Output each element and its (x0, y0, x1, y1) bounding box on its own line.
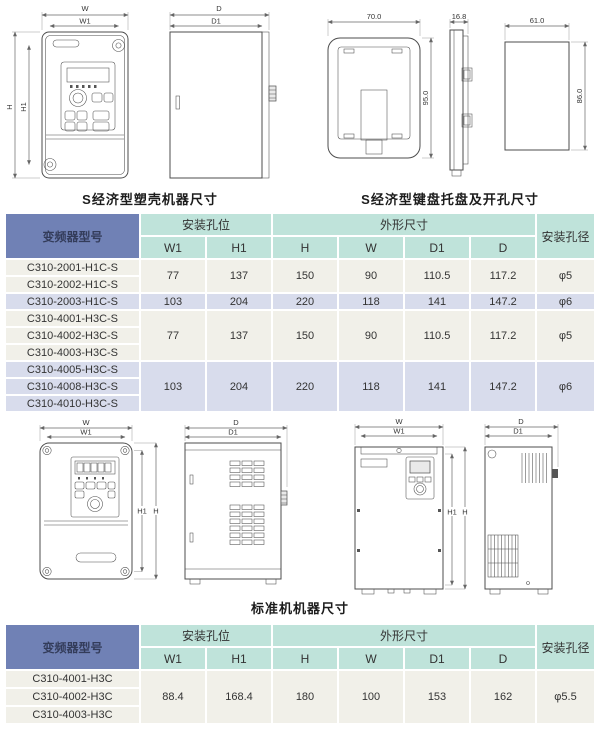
s-machine-caption: S经济型塑壳机器尺寸 (82, 192, 218, 208)
col-header-h1: H1 (207, 237, 271, 258)
col-header-model: 变频器型号 (6, 625, 139, 669)
value-cell: 180 (273, 671, 337, 723)
value-cell: 141 (405, 362, 469, 411)
value-cell: 141 (405, 294, 469, 309)
value-cell: 103 (141, 362, 205, 411)
table-row: C310-4005-H3C-S 103 204 220 118 141 147.… (6, 362, 594, 377)
model-cell: C310-4003-H3C (6, 707, 139, 723)
col-header-w1: W1 (141, 648, 205, 669)
s-side-view (170, 32, 276, 178)
col-group-outline-dims: 外形尺寸 (273, 214, 535, 235)
value-cell: 153 (405, 671, 469, 723)
dim-label-tray-depth: 16.8 (452, 12, 467, 21)
s-keypad-drawing-block: 70.0 95.0 16.8 (300, 0, 600, 208)
dim-label-w: W (395, 417, 403, 426)
col-group-mounting-holes: 安装孔位 (141, 214, 271, 235)
value-cell: 147.2 (471, 294, 535, 309)
value-cell: 88.4 (141, 671, 205, 723)
model-cell: C310-4001-H3C (6, 671, 139, 687)
col-header-d: D (471, 237, 535, 258)
model-cell: C310-2003-H1C-S (6, 294, 139, 309)
value-cell: 118 (339, 362, 403, 411)
model-cell: C310-2002-H1C-S (6, 277, 139, 292)
dim-label-d1: D1 (513, 427, 523, 436)
dim-label-d: D (518, 417, 524, 426)
std-machine-dimension-drawing: W W1 H1 H (0, 417, 300, 599)
dim-label-tray-height: 95.0 (421, 91, 430, 106)
panel-cutout-view (505, 42, 569, 150)
value-cell: 117.2 (471, 311, 535, 360)
value-cell: 90 (339, 311, 403, 360)
dim-label-h1: H1 (137, 507, 147, 516)
value-cell: 162 (471, 671, 535, 723)
dim-label-d: D (216, 4, 222, 13)
dim-label-cutout-height: 86.0 (575, 89, 584, 104)
standard-machine-drawings-section: W W1 H1 H (0, 417, 600, 599)
value-cell: 137 (207, 311, 271, 360)
dim-label-h1: H1 (19, 102, 28, 112)
col-header-w: W (339, 237, 403, 258)
dim-label-d: D (233, 418, 239, 427)
tray-side-view (450, 30, 472, 176)
std-large-front-view (355, 447, 443, 594)
value-cell: 77 (141, 260, 205, 292)
dim-label-w1: W1 (393, 427, 404, 436)
dim-label-tray-width: 70.0 (367, 12, 382, 21)
value-cell: 117.2 (471, 260, 535, 292)
model-cell: C310-2001-H1C-S (6, 260, 139, 275)
s-keypad-caption: S经济型键盘托盘及开孔尺寸 (361, 192, 539, 208)
dim-label-h: H (153, 507, 158, 516)
value-cell: φ6 (537, 362, 594, 411)
model-cell: C310-4002-H3C-S (6, 328, 139, 343)
col-header-d1: D1 (405, 648, 469, 669)
col-header-w: W (339, 648, 403, 669)
col-header-hole-diameter: 安装孔径 (537, 214, 594, 258)
col-group-mounting-holes: 安装孔位 (141, 625, 271, 646)
col-header-h: H (273, 648, 337, 669)
dim-label-d1: D1 (211, 17, 221, 26)
s-side-view-dimensions: D D1 (170, 4, 269, 30)
s-series-spec-table: 变频器型号 安装孔位 外形尺寸 安装孔径 W1 H1 H W D1 D C310… (4, 212, 596, 413)
table-row: C310-2001-H1C-S 77 137 150 90 110.5 117.… (6, 260, 594, 275)
value-cell: 103 (141, 294, 205, 309)
dim-label-h1: H1 (447, 508, 457, 517)
value-cell: φ5.5 (537, 671, 594, 723)
value-cell: φ5 (537, 260, 594, 292)
dim-label-h: H (5, 104, 14, 109)
table-row: C310-4001-H3C 88.4 168.4 180 100 153 162… (6, 671, 594, 687)
dim-label-h: H (462, 508, 467, 517)
model-cell: C310-4002-H3C (6, 689, 139, 705)
value-cell: 137 (207, 260, 271, 292)
dim-label-w1: W1 (79, 17, 90, 26)
datasheet-page: { "captions": { "s_machine": "S经济型塑壳机器尺寸… (0, 0, 600, 736)
value-cell: 90 (339, 260, 403, 292)
col-header-h1: H1 (207, 648, 271, 669)
value-cell: 100 (339, 671, 403, 723)
dim-label-w1: W1 (80, 428, 91, 437)
value-cell: 147.2 (471, 362, 535, 411)
s-series-drawings-section: W W1 H H1 D D1 (0, 0, 600, 208)
table-row: C310-2003-H1C-S 103 204 220 118 141 147.… (6, 294, 594, 309)
std-large-frame-block: W W1 H1 H (300, 417, 600, 599)
dim-label-w: W (81, 4, 89, 13)
col-header-d: D (471, 648, 535, 669)
col-group-outline-dims: 外形尺寸 (273, 625, 535, 646)
s-front-view (42, 32, 128, 178)
value-cell: φ6 (537, 294, 594, 309)
std-side-view (185, 443, 287, 584)
col-header-model: 变频器型号 (6, 214, 139, 258)
value-cell: 110.5 (405, 311, 469, 360)
value-cell: 220 (273, 362, 337, 411)
s-machine-drawing-block: W W1 H H1 D D1 (0, 0, 300, 208)
value-cell: 150 (273, 311, 337, 360)
model-cell: C310-4005-H3C-S (6, 362, 139, 377)
std-large-machine-dimension-drawing: W W1 H1 H (300, 417, 600, 599)
col-header-d1: D1 (405, 237, 469, 258)
std-front-view (40, 443, 132, 579)
table-row: C310-4001-H3C-S 77 137 150 90 110.5 117.… (6, 311, 594, 326)
value-cell: 110.5 (405, 260, 469, 292)
standard-spec-table: 变频器型号 安装孔位 外形尺寸 安装孔径 W1 H1 H W D1 D C310… (4, 623, 596, 725)
dim-label-cutout-width: 61.0 (530, 16, 545, 25)
value-cell: 118 (339, 294, 403, 309)
std-small-frame-block: W W1 H1 H (0, 417, 300, 599)
model-cell: C310-4001-H3C-S (6, 311, 139, 326)
tray-front-view (328, 38, 420, 158)
value-cell: 77 (141, 311, 205, 360)
col-header-hole-diameter: 安装孔径 (537, 625, 594, 669)
s-keypad-tray-drawing: 70.0 95.0 16.8 (300, 0, 600, 192)
value-cell: φ5 (537, 311, 594, 360)
value-cell: 168.4 (207, 671, 271, 723)
col-header-h: H (273, 237, 337, 258)
model-cell: C310-4008-H3C-S (6, 379, 139, 394)
value-cell: 204 (207, 294, 271, 309)
model-cell: C310-4003-H3C-S (6, 345, 139, 360)
dim-label-w: W (82, 418, 90, 427)
model-cell: C310-4010-H3C-S (6, 396, 139, 411)
value-cell: 220 (273, 294, 337, 309)
value-cell: 150 (273, 260, 337, 292)
col-header-w1: W1 (141, 237, 205, 258)
dim-label-d1: D1 (228, 428, 238, 437)
std-large-side-view (485, 447, 558, 594)
value-cell: 204 (207, 362, 271, 411)
std-machine-caption: 标准机机器尺寸 (0, 601, 600, 617)
s-machine-dimension-drawing: W W1 H H1 D D1 (0, 0, 300, 192)
